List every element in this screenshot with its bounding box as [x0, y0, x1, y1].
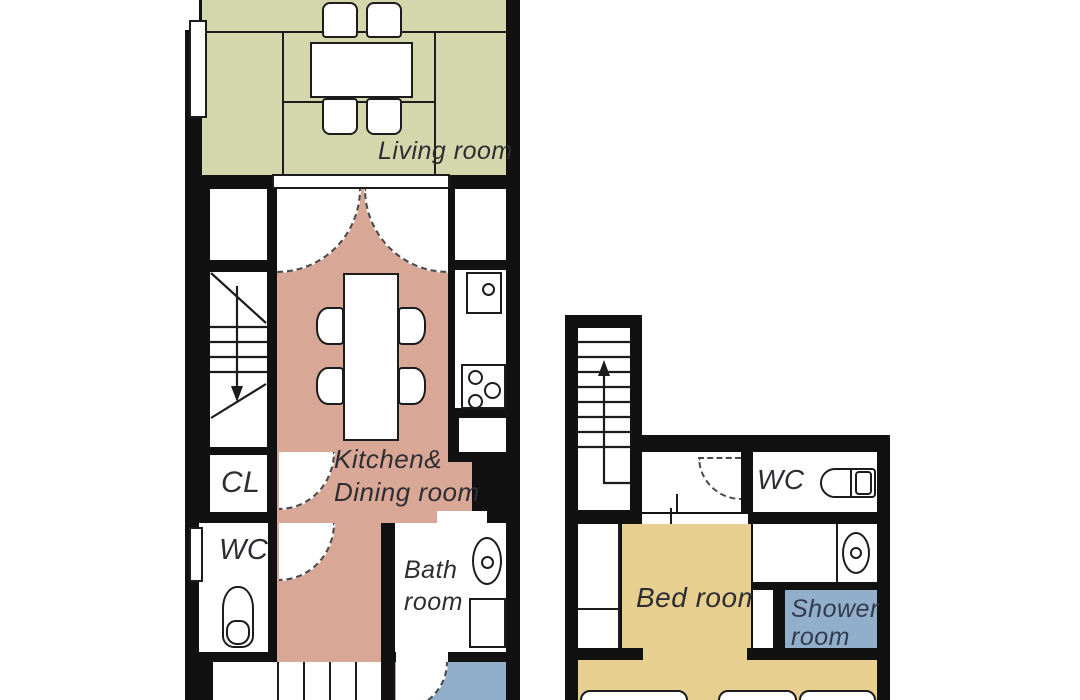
wc-2f-label: WC	[757, 466, 805, 494]
dining-table	[343, 273, 399, 441]
living-chair	[322, 2, 358, 38]
bed	[580, 690, 688, 700]
wall-segment	[448, 408, 520, 418]
bedroom-opening	[643, 648, 747, 660]
bath-label-line1: Bath	[404, 558, 457, 583]
step-line	[277, 662, 279, 700]
wall-segment	[448, 260, 520, 270]
step-line	[303, 662, 305, 700]
kitchen-label-line1: Kitchen&	[334, 446, 442, 472]
dining-chair	[398, 307, 426, 345]
shower-label-line2: room	[791, 625, 850, 650]
sink-drain	[482, 283, 495, 296]
step-line	[329, 662, 331, 700]
counter-divider	[836, 524, 838, 582]
window	[189, 20, 207, 118]
cabinet	[718, 690, 797, 700]
living-chair	[322, 98, 358, 135]
counter-cabinet	[459, 418, 506, 452]
door-leaf	[676, 494, 678, 512]
toilet-line	[850, 470, 852, 496]
toilet-tank	[855, 471, 872, 495]
stove-burner	[468, 370, 483, 385]
kitchen-label-line2: Dining room	[334, 479, 480, 505]
closet-divider	[578, 608, 620, 610]
stairs-up	[578, 328, 630, 510]
washbasin-drain	[850, 547, 862, 559]
tatami-line	[282, 101, 436, 103]
floor-plan: Living room CL WC	[0, 0, 1080, 700]
bath-label-line2: room	[404, 590, 463, 615]
stairs-down	[210, 272, 267, 447]
bedroom-label: Bed room	[636, 584, 761, 612]
niche	[753, 590, 773, 648]
washbasin-drain	[481, 556, 494, 569]
closet-label: CL	[221, 468, 260, 498]
cabinet	[799, 690, 876, 700]
living-table	[310, 42, 413, 98]
dining-chair	[316, 307, 344, 345]
closet-2f	[578, 524, 620, 648]
toilet-tank	[226, 620, 250, 645]
sliding-door	[272, 174, 450, 189]
alcove	[210, 189, 267, 260]
wall-segment	[448, 452, 520, 462]
sliding-door	[642, 514, 748, 524]
bath-door-gap	[437, 511, 487, 523]
living-room-label: Living room	[378, 139, 513, 164]
step-line	[355, 662, 357, 700]
living-chair	[366, 2, 402, 38]
dining-chair	[316, 367, 344, 405]
shower-label-line1: Shower	[791, 597, 879, 622]
stove-burner	[484, 382, 501, 399]
alcove	[455, 189, 506, 260]
stove-burner	[468, 394, 483, 409]
washing-machine	[469, 598, 506, 648]
tatami-line	[282, 31, 284, 175]
window	[189, 527, 203, 582]
living-chair	[366, 98, 402, 135]
wc-1f-label: WC	[219, 536, 268, 565]
dining-chair	[398, 367, 426, 405]
